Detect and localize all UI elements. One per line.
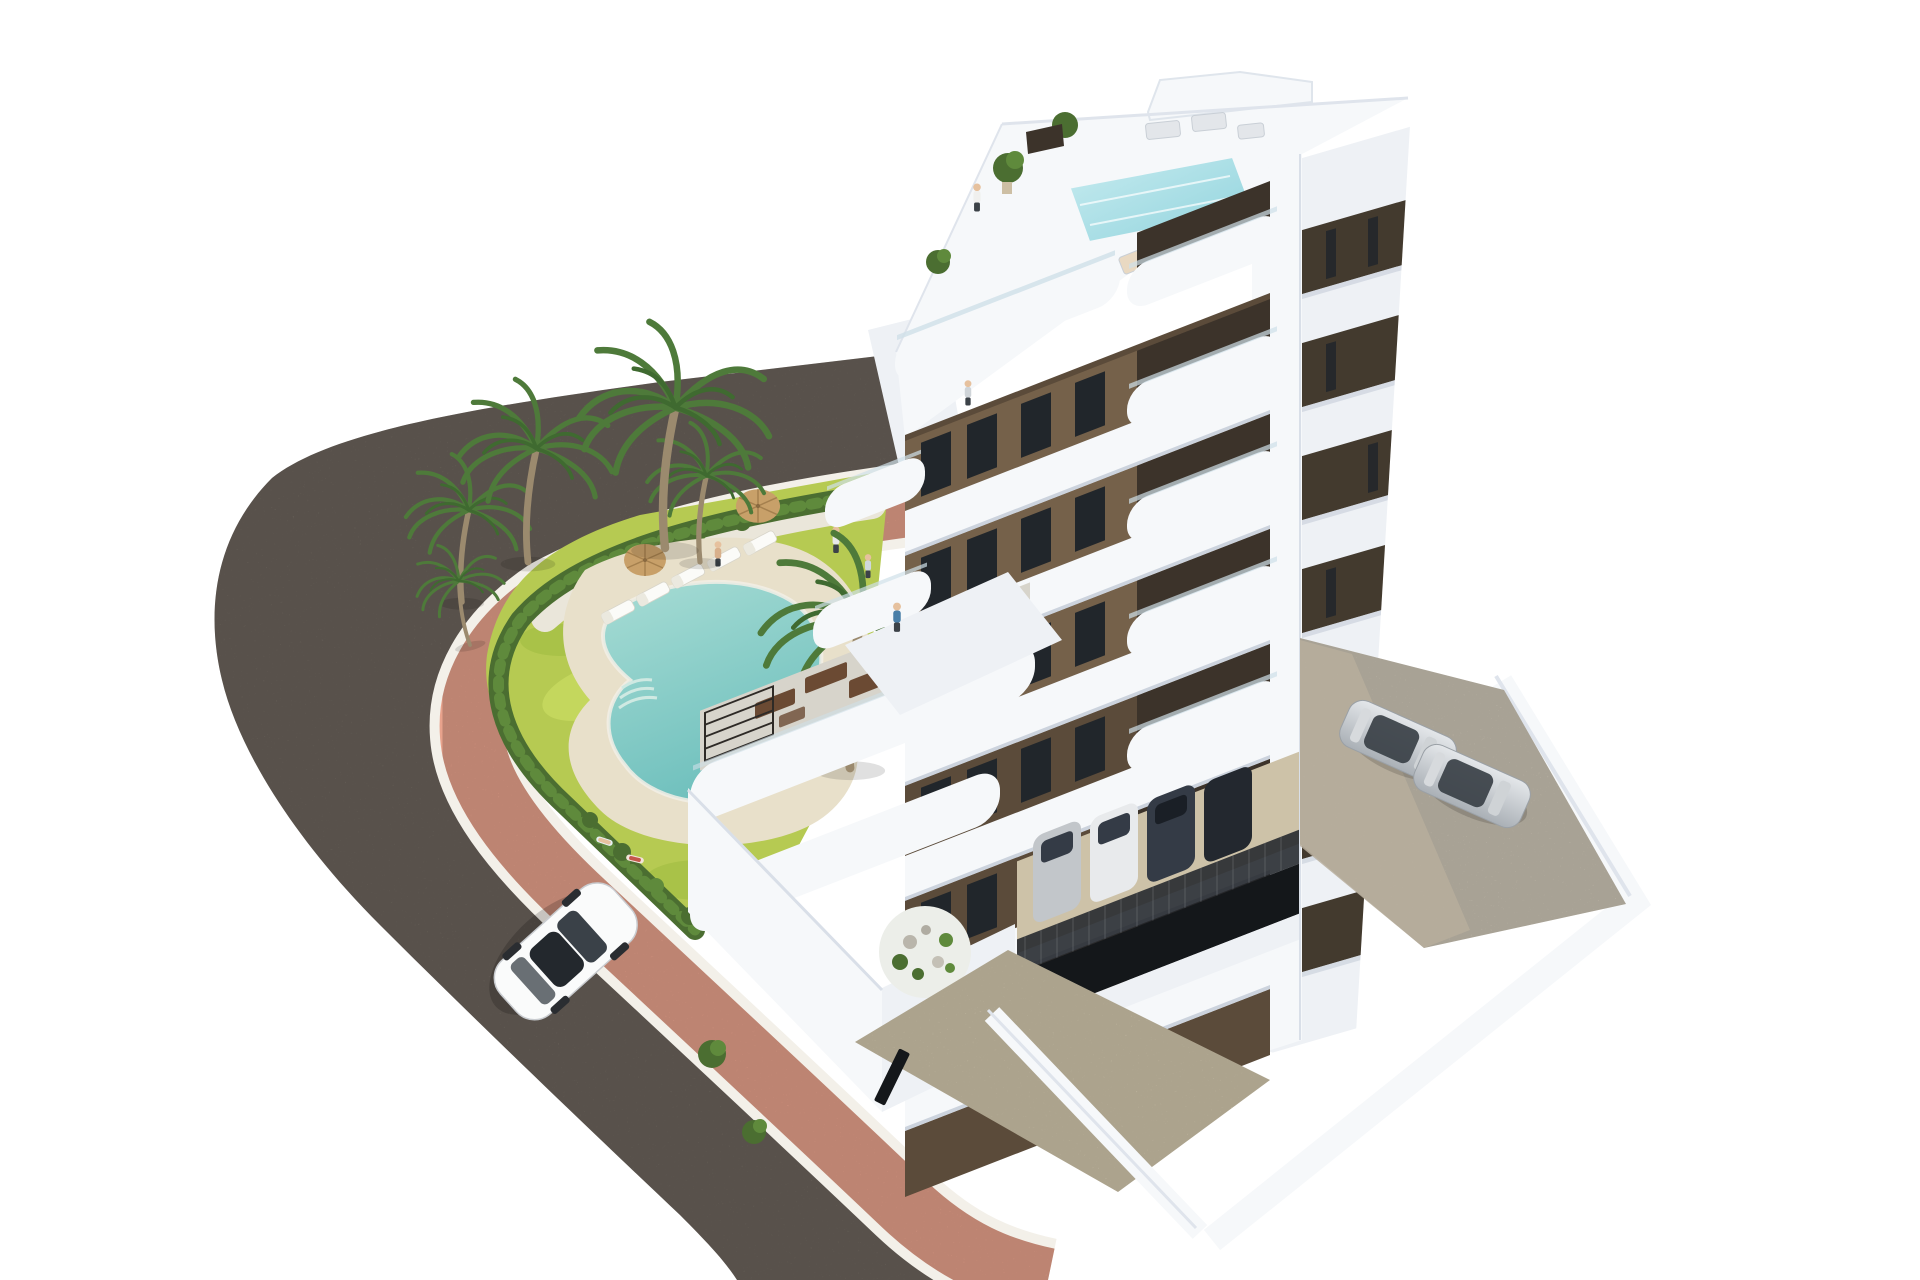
- balcony-person: [965, 380, 972, 405]
- render-canvas: [0, 0, 1920, 1280]
- scene-svg: [0, 0, 1920, 1280]
- rooftop-person: [973, 184, 981, 212]
- terrace-person-blue: [893, 603, 901, 632]
